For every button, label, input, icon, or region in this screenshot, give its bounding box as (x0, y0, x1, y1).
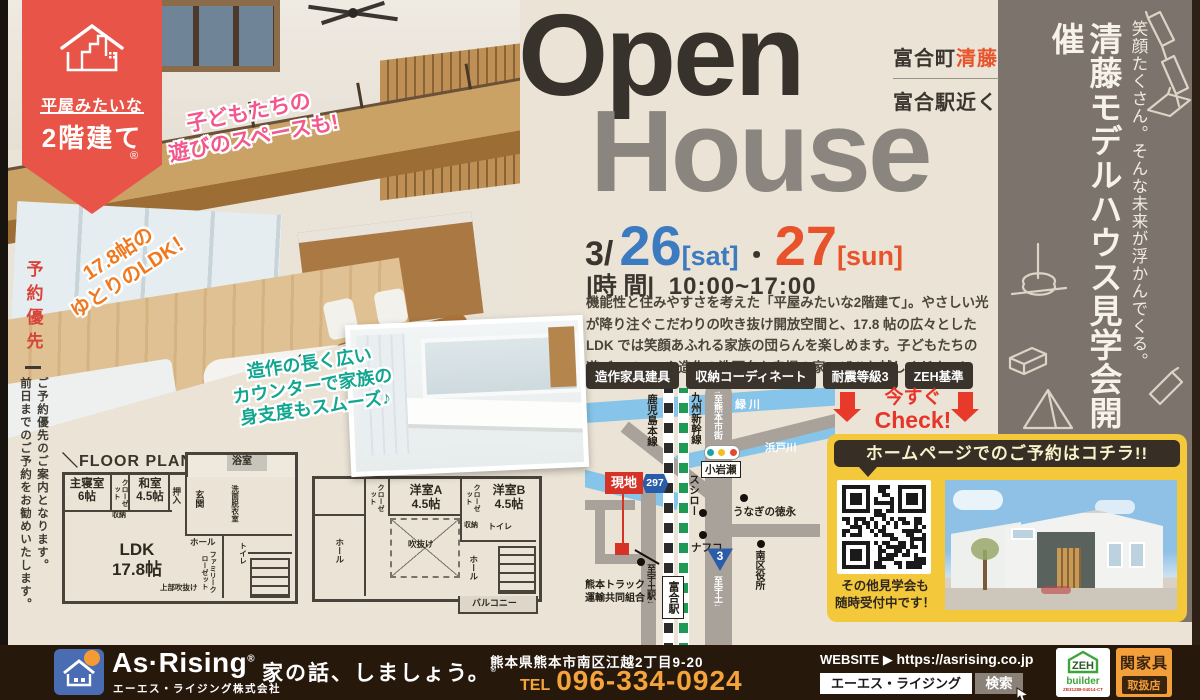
stairs-2f (498, 546, 536, 594)
room-bath: 浴室 (232, 456, 252, 468)
poi-sushiro: スシロー (687, 474, 702, 530)
book-icon (1146, 86, 1192, 130)
room-storage-2f: 収納 (464, 522, 478, 530)
room-washroom: 洗面脱衣室 (230, 478, 239, 530)
area-sub: 富合駅近く (893, 86, 1013, 115)
dealer-name: 関家具 (1116, 652, 1172, 673)
room-bedroom: 主寝室 6帖 (64, 478, 110, 504)
website-url[interactable]: https://asrising.co.jp (896, 651, 1033, 667)
room-hall-2: ホール (468, 548, 478, 588)
exterior-photo (945, 480, 1177, 610)
footer-bar: As·Rising® エーエス・ライジング株式会社 家の話、しましょう。® 熊本… (0, 645, 1200, 700)
feature-badge: 耐震等級3 (823, 362, 898, 389)
company-logo-icon (54, 649, 104, 695)
down-arrow-icon (840, 392, 855, 409)
room-closet-b: クローゼット (464, 482, 480, 514)
left-edge-strip (0, 0, 8, 645)
room-washitsu: 和室 4.5帖 (132, 478, 168, 504)
rail-local-label: 鹿児島本線 (645, 394, 660, 464)
traffic-light-icon (704, 445, 740, 460)
river1-label: 緑川 (735, 396, 763, 412)
chair (373, 288, 408, 327)
room-hall: ホール (190, 538, 216, 548)
down-arrow-icon (958, 392, 973, 409)
to-city-label: ↑至熊本市街 (712, 390, 725, 450)
area-town: 富合町 (893, 48, 956, 70)
feature-badge: 造作家具建具 (586, 362, 679, 389)
room-storage: 収納 (112, 512, 126, 520)
room-a: 洋室A 4.5帖 (398, 484, 454, 512)
tel-number[interactable]: 096-334-0924 (556, 665, 742, 697)
promo-header: ホームページでのご予約はコチラ!! (834, 440, 1180, 467)
house-logo-icon (58, 22, 126, 76)
ceiling-fan-icon (308, 2, 398, 24)
company-name-en: As·Rising® (112, 647, 255, 679)
check-now-label: 今すぐ Check! (868, 388, 958, 432)
poi-truck: 熊本トラック 運輸共同組合 (585, 580, 645, 605)
feature-badge: 収納コーディネート (686, 362, 816, 389)
web-reservation-box: ホームページでのご予約はコチラ!! その他見学会も 随時受付中です！ (827, 434, 1187, 622)
floor-plan-1f: 主寝室 6帖 クローゼット 収納 和室 4.5帖 押入 玄関 浴室 洗面脱衣室 … (62, 452, 294, 600)
room-void: 吹抜け (408, 540, 434, 550)
right-edge-strip (1192, 0, 1200, 645)
window (153, 0, 280, 72)
cursor-icon (1015, 687, 1031, 700)
room-closet: クローゼット (112, 476, 128, 510)
svg-text:ZEH: ZEH (1072, 660, 1094, 672)
room-balcony: バルコニー (472, 598, 517, 608)
registered-mark: ® (247, 654, 255, 665)
reservation-priority-column: 予約優先 ご予約優先のご案内となります。 前日までのご予約をお勧めいたします。 (10, 260, 56, 642)
to-uto-station: 至宇土駅↓ (645, 564, 658, 620)
station-label: 富合駅 (662, 576, 684, 619)
website-label: WEBSITE (820, 652, 879, 667)
room-oshiire: 押入 (171, 478, 181, 512)
to-uto: 至宇土↓ (712, 576, 725, 626)
area-accent: 清藤 (956, 48, 998, 70)
panel-headline: 清藤モデルハウス見学会開催 (1046, 22, 1122, 442)
title-house: House (590, 100, 988, 202)
access-map: 鹿児島本線 九州新幹線 ↑至熊本市街 緑川 浜戸川 小岩瀬 スシロー うなぎの徳… (585, 388, 835, 648)
room-toilet-2f: トイレ (488, 522, 512, 531)
company-name-jp: エーエス・ライジング株式会社 (113, 681, 281, 696)
site-square (615, 543, 629, 555)
zeh-house-icon: ZEH (1065, 650, 1101, 674)
poi-unagi: うなぎの徳永 (733, 504, 796, 519)
poi-ward-office: 南区役所 (751, 550, 766, 602)
road-cross (715, 524, 820, 537)
room-hall-1: ホール (334, 531, 344, 571)
event-day2-tag: [sun] (837, 241, 903, 272)
room-closet-a: クローゼット (368, 482, 384, 514)
room-b: 洋室B 4.5帖 (484, 484, 534, 512)
room-genkan: 玄関 (194, 482, 204, 516)
zeh-builder-badge: ZEH builder ZB31288-04014-CT (1056, 648, 1110, 697)
zeh-builder-label: builder (1056, 676, 1110, 687)
entrance (1057, 548, 1081, 590)
phone: TEL 096-334-0924 (520, 665, 743, 697)
reservation-note: ご予約優先のご案内となります。 前日までのご予約をお勧めいたします。 (16, 377, 50, 629)
room-toilet: トイレ (238, 538, 247, 568)
counter (393, 398, 584, 429)
junction-label: 小岩瀬 (701, 461, 741, 478)
qr-code[interactable] (837, 480, 931, 574)
block-icon (1006, 344, 1050, 378)
reservation-title: 予約優先 (21, 260, 46, 356)
crayon-icon (1144, 364, 1188, 408)
dealer-sub: 取扱店 (1122, 676, 1167, 694)
feature-badge: ZEH基準 (905, 362, 973, 389)
flyer: 平屋みたいな 2階建て ® 子どもたちの 遊びのスペースも! 17.8帖の ゆと… (0, 0, 1200, 700)
area-label: 富合町清藤 富合駅近く (893, 42, 1013, 115)
room-void-note: 上部吹抜け (160, 584, 198, 593)
brand-name-bottom: 2階建て (22, 118, 162, 155)
registered-mark: ® (130, 150, 138, 162)
rail-shinkansen-label: 九州新幹線 (689, 392, 704, 462)
search-input[interactable]: エーエス・ライジング (820, 673, 972, 694)
spinning-top-icon (1004, 238, 1074, 328)
floor-plan-2f: クローゼット 洋室A 4.5帖 クローゼット 洋室B 4.5帖 吹抜け ホール … (312, 476, 540, 616)
search-button[interactable]: 検索 (975, 673, 1023, 694)
search-bar: エーエス・ライジング 検索 (820, 673, 1023, 694)
cabinet (548, 326, 577, 387)
route-297-badge: 297 (642, 474, 668, 493)
feature-badges: 造作家具建具 収納コーディネート 耐震等級3 ZEH基準 (586, 362, 973, 389)
room-ldk: LDK 17.8帖 (102, 540, 172, 579)
site-marker-label: 現地 (605, 472, 643, 494)
website-row: WEBSITE ▶ https://asrising.co.jp (820, 651, 1033, 668)
stairs (250, 558, 290, 598)
triangle-right-icon: ▶ (883, 652, 893, 667)
dealer-badge: 関家具 取扱店 (1116, 648, 1172, 697)
qr-note: その他見学会も 随時受付中です！ (827, 578, 943, 612)
tagline: 家の話、しましょう。® (262, 657, 498, 687)
tel-label: TEL (520, 677, 550, 695)
pyramid-icon (1020, 386, 1076, 434)
zeh-code: ZB31288-04014-CT (1056, 687, 1110, 692)
river2-label: 浜戸川 (765, 440, 797, 455)
room-family-closet: ファミリークローゼット (200, 548, 216, 596)
